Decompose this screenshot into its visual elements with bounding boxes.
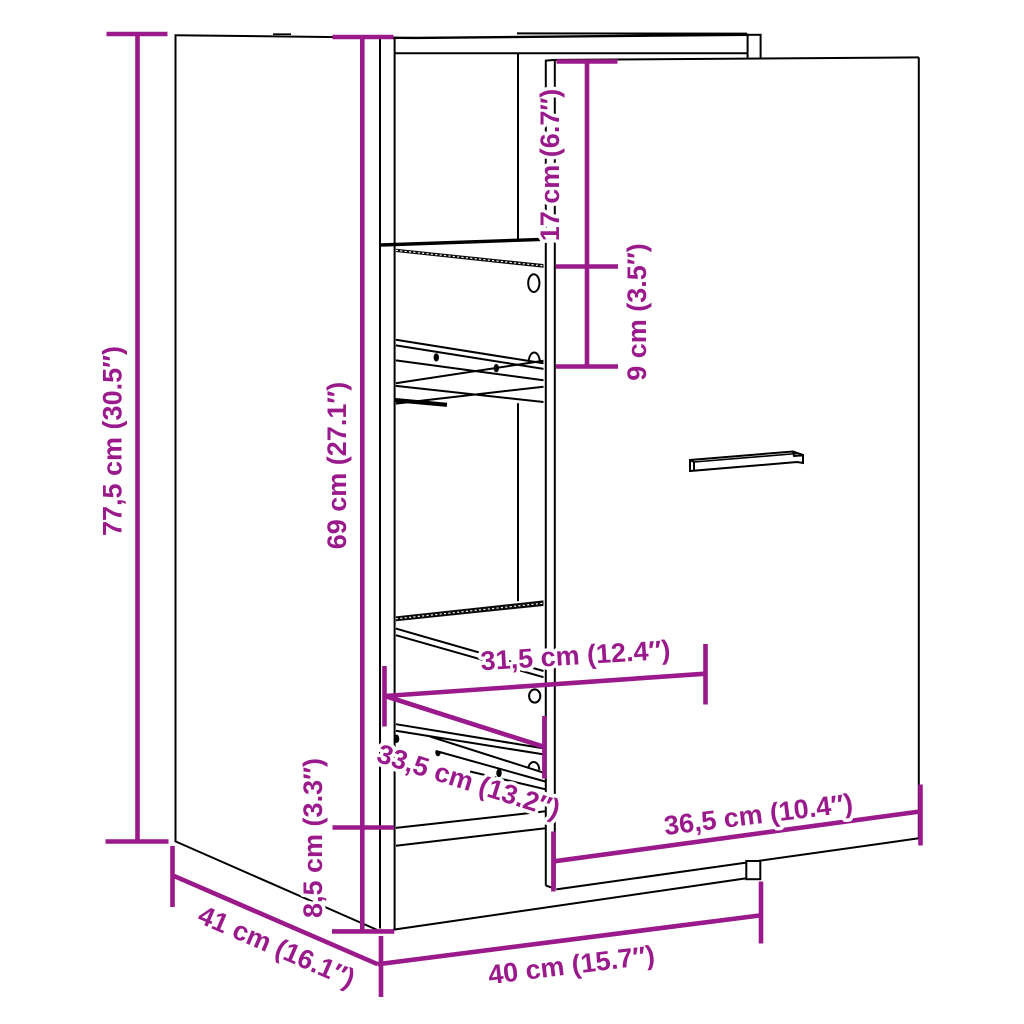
svg-text:69 cm (27.1″): 69 cm (27.1″) bbox=[322, 382, 352, 550]
svg-text:9 cm (3.5″): 9 cm (3.5″) bbox=[622, 243, 652, 381]
svg-text:17 cm (6.7″): 17 cm (6.7″) bbox=[535, 89, 565, 242]
svg-text:8,5 cm (3.3″): 8,5 cm (3.3″) bbox=[298, 758, 328, 918]
svg-text:77,5 cm (30.5″): 77,5 cm (30.5″) bbox=[98, 346, 128, 536]
